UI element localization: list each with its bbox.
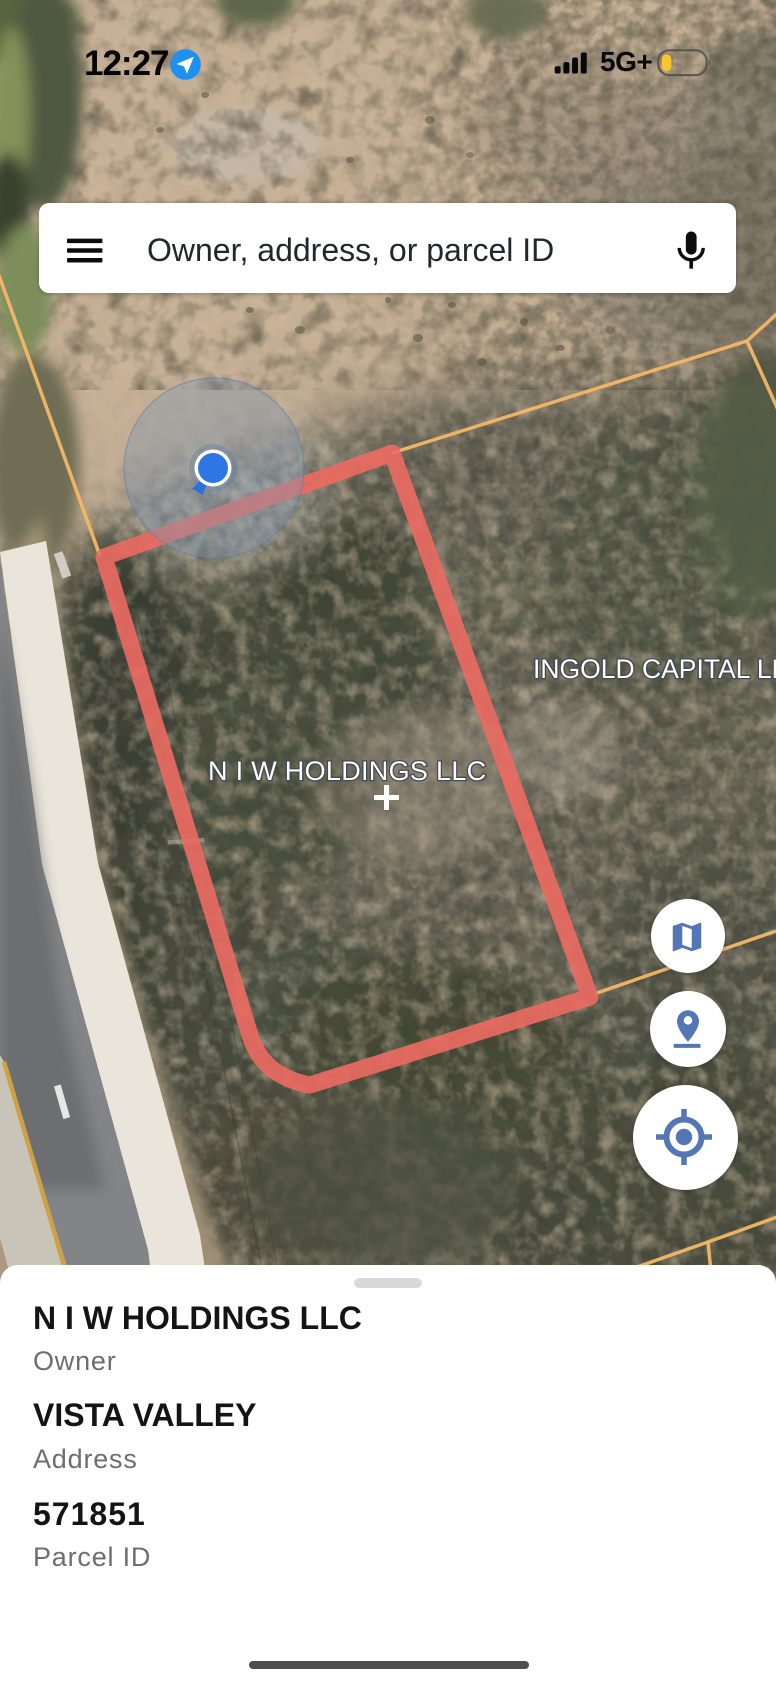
svg-text:N I W HOLDINGS LLC: N I W HOLDINGS LLC	[208, 756, 486, 786]
svg-text:INGOLD CAPITAL LLC: INGOLD CAPITAL LLC	[533, 654, 776, 684]
